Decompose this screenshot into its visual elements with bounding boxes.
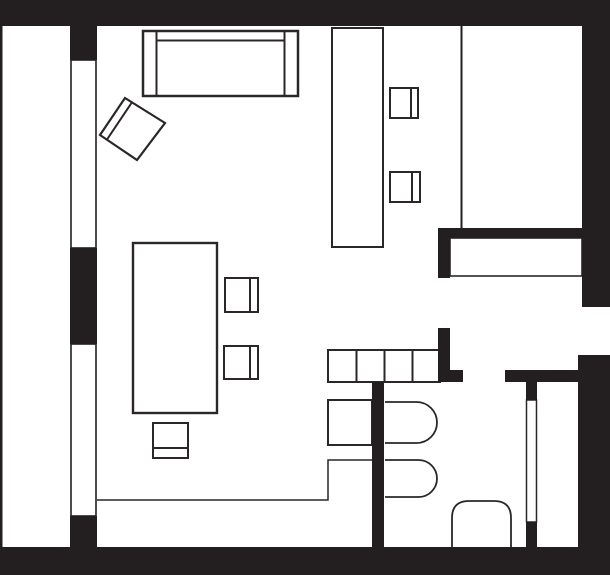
desk-chair-1-seat bbox=[390, 88, 418, 118]
closet-door-leaf bbox=[527, 400, 537, 522]
kitchen-zone-line bbox=[97, 460, 372, 500]
left-window-lower bbox=[71, 344, 96, 516]
armchair bbox=[100, 98, 165, 160]
right-wall-lower bbox=[578, 355, 610, 575]
bathroom-wall-foot bbox=[438, 370, 463, 382]
closet-door-jamb-top bbox=[526, 381, 537, 400]
balcony-edge-line bbox=[0, 26, 3, 547]
closet-door-jamb-bottom bbox=[526, 522, 537, 547]
left-window-upper bbox=[71, 60, 96, 248]
hallway-sideboard bbox=[450, 238, 582, 276]
desk-chair-2-seat bbox=[390, 172, 420, 202]
toilet bbox=[452, 501, 511, 547]
bottom-wall bbox=[0, 547, 610, 575]
bedroom-south-wall bbox=[438, 228, 582, 238]
dining-chair-2-seat bbox=[224, 346, 258, 379]
floor-plan-canvas bbox=[0, 0, 610, 575]
bathroom-basin-1 bbox=[385, 402, 437, 443]
kitchen-appliance bbox=[328, 400, 372, 445]
bedroom-wall-stub bbox=[438, 228, 450, 278]
bathroom-door-header bbox=[505, 370, 578, 382]
floor-plan-svg bbox=[0, 0, 610, 575]
left-wall-lower bbox=[70, 516, 97, 548]
dining-table bbox=[133, 243, 217, 413]
right-wall-upper bbox=[582, 0, 610, 307]
bathroom-partition-wall bbox=[372, 382, 384, 547]
top-wall bbox=[0, 0, 610, 26]
desk bbox=[332, 28, 383, 247]
left-wall-upper bbox=[70, 26, 97, 60]
dining-chair-1-seat bbox=[225, 278, 258, 312]
dining-chair-3-seat bbox=[153, 423, 188, 458]
bathroom-basin-2 bbox=[385, 460, 437, 497]
left-wall-middle bbox=[70, 248, 97, 344]
